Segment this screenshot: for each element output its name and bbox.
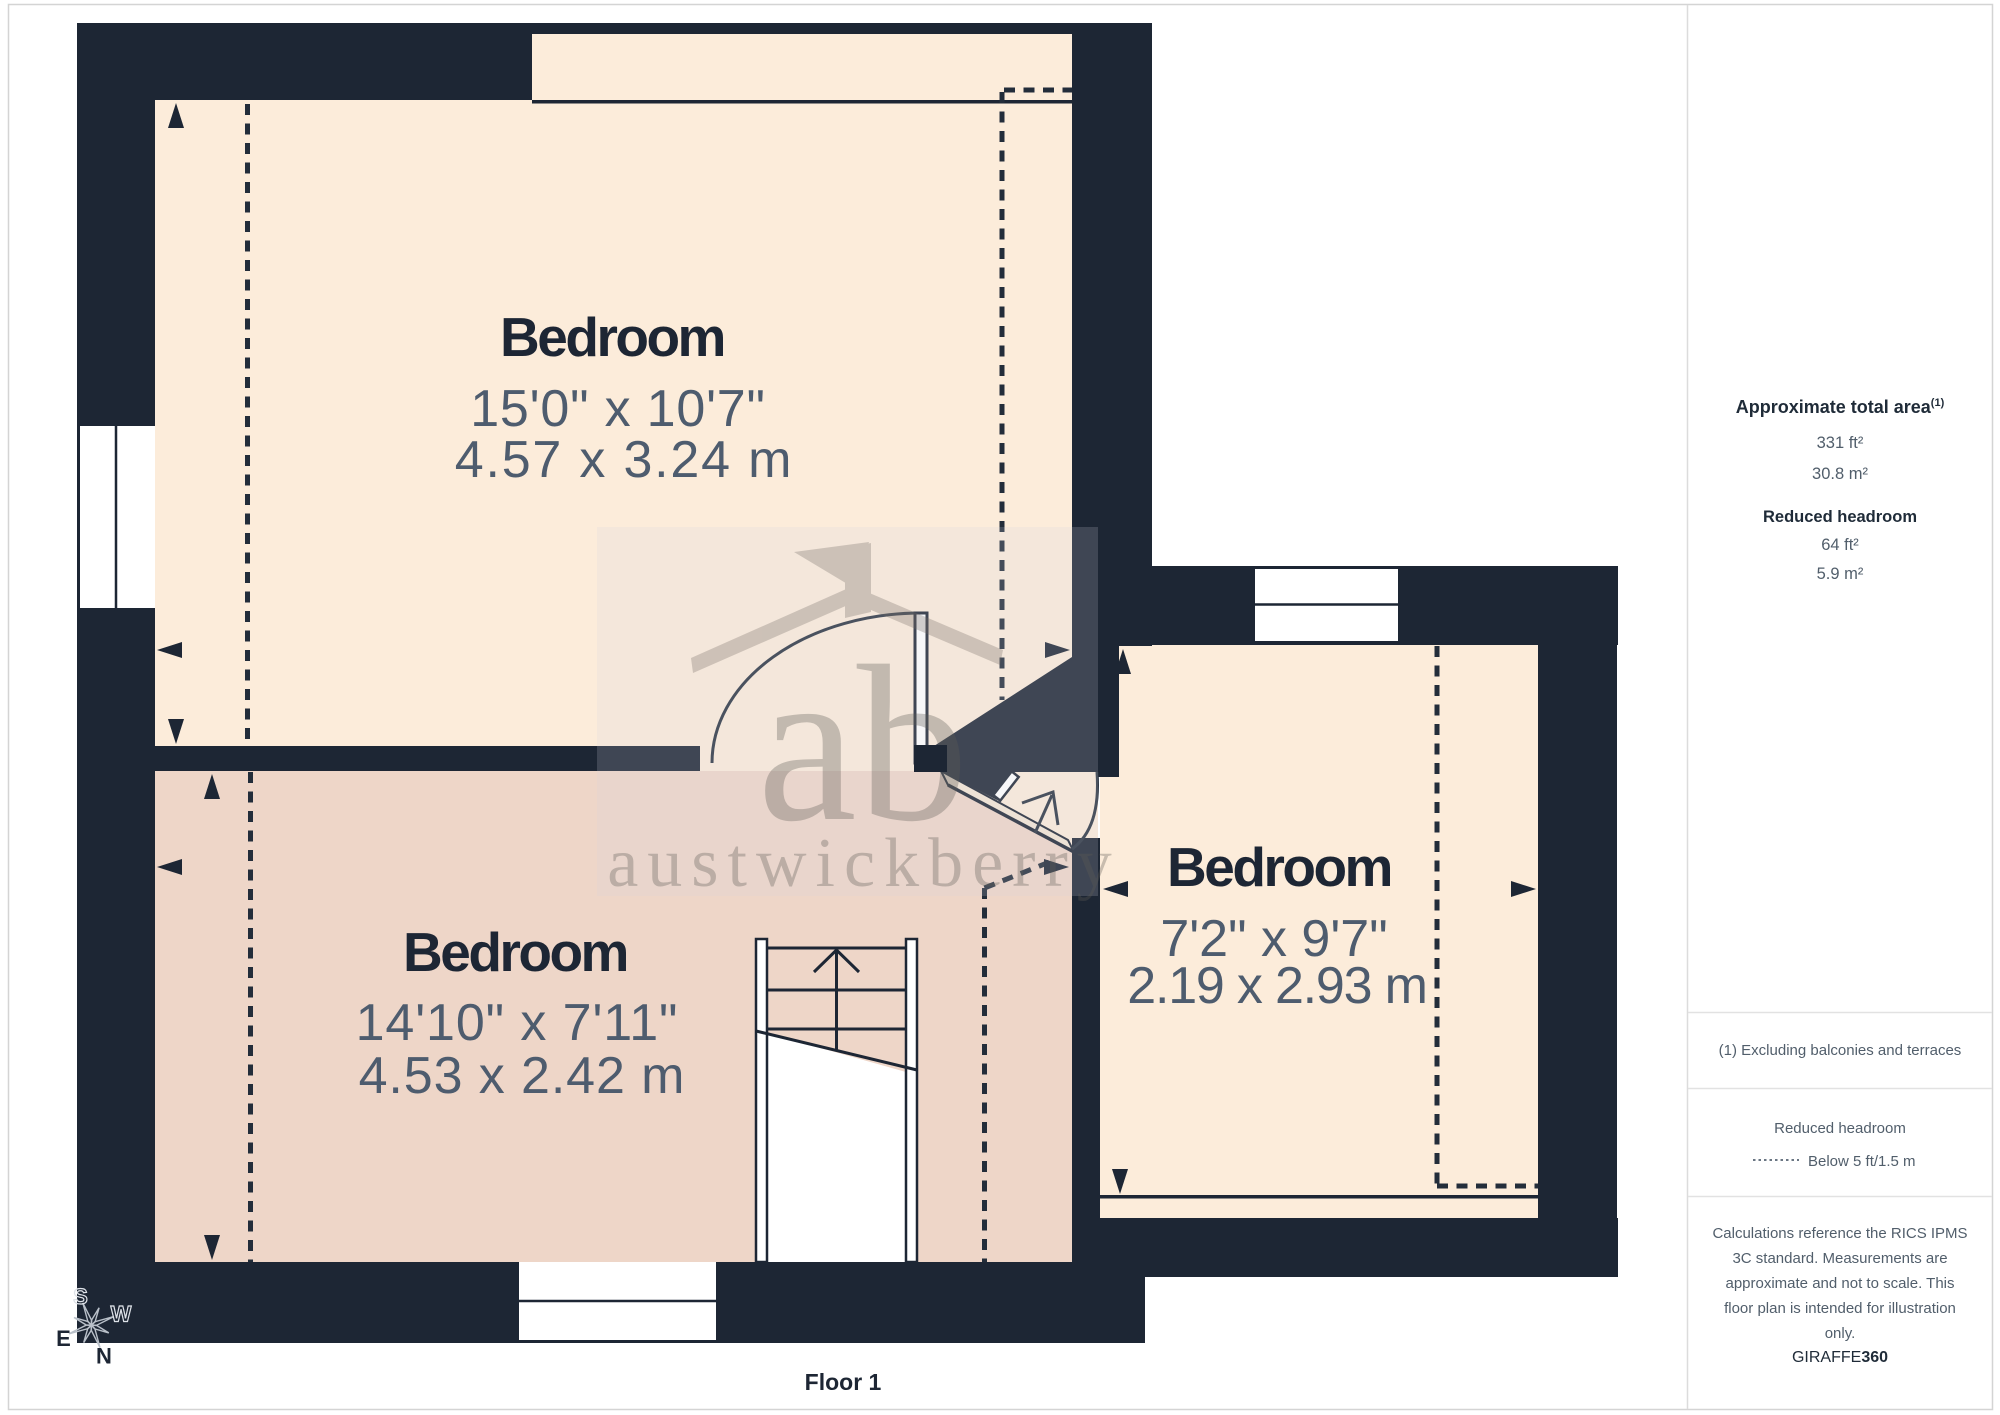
svg-text:austwickberry: austwickberry: [607, 825, 1121, 902]
svg-text:30.8 m²: 30.8 m²: [1812, 465, 1868, 483]
svg-text:approximate and not to scale.: approximate and not to scale. This: [1725, 1275, 1954, 1292]
svg-text:Approximate total area(1): Approximate total area(1): [1736, 397, 1945, 417]
svg-text:Bedroom: Bedroom: [1167, 836, 1391, 898]
svg-text:4.53 x 2.42 m: 4.53 x 2.42 m: [359, 1047, 686, 1105]
svg-text:Reduced headroom: Reduced headroom: [1763, 508, 1917, 526]
svg-text:Below 5 ft/1.5 m: Below 5 ft/1.5 m: [1808, 1153, 1916, 1170]
svg-text:4.57 x 3.24 m: 4.57 x 3.24 m: [455, 431, 793, 489]
svg-text:W: W: [111, 1302, 132, 1327]
svg-text:15'0" x 10'7": 15'0" x 10'7": [470, 380, 766, 438]
svg-text:(1) Excluding balconies and te: (1) Excluding balconies and terraces: [1719, 1042, 1962, 1059]
svg-text:14'10" x 7'11": 14'10" x 7'11": [356, 994, 679, 1052]
svg-text:floor plan is intended for ill: floor plan is intended for illustration: [1724, 1300, 1956, 1317]
svg-text:Floor 1: Floor 1: [805, 1369, 882, 1395]
svg-text:only.: only.: [1825, 1325, 1856, 1342]
svg-text:64 ft²: 64 ft²: [1821, 536, 1859, 554]
svg-text:S: S: [73, 1284, 88, 1309]
svg-text:GIRAFFE360: GIRAFFE360: [1792, 1349, 1888, 1366]
svg-text:N: N: [96, 1344, 112, 1369]
svg-text:2.19 x 2.93 m: 2.19 x 2.93 m: [1127, 957, 1426, 1015]
svg-text:5.9 m²: 5.9 m²: [1817, 565, 1864, 583]
svg-text:E: E: [56, 1326, 71, 1351]
svg-text:Reduced headroom: Reduced headroom: [1774, 1120, 1906, 1137]
svg-text:Bedroom: Bedroom: [500, 306, 724, 368]
svg-text:Bedroom: Bedroom: [403, 921, 627, 983]
svg-text:331 ft²: 331 ft²: [1817, 434, 1864, 452]
svg-text:3C standard. Measurements are: 3C standard. Measurements are: [1732, 1250, 1947, 1267]
svg-text:Calculations reference the RIC: Calculations reference the RICS IPMS: [1712, 1225, 1967, 1242]
